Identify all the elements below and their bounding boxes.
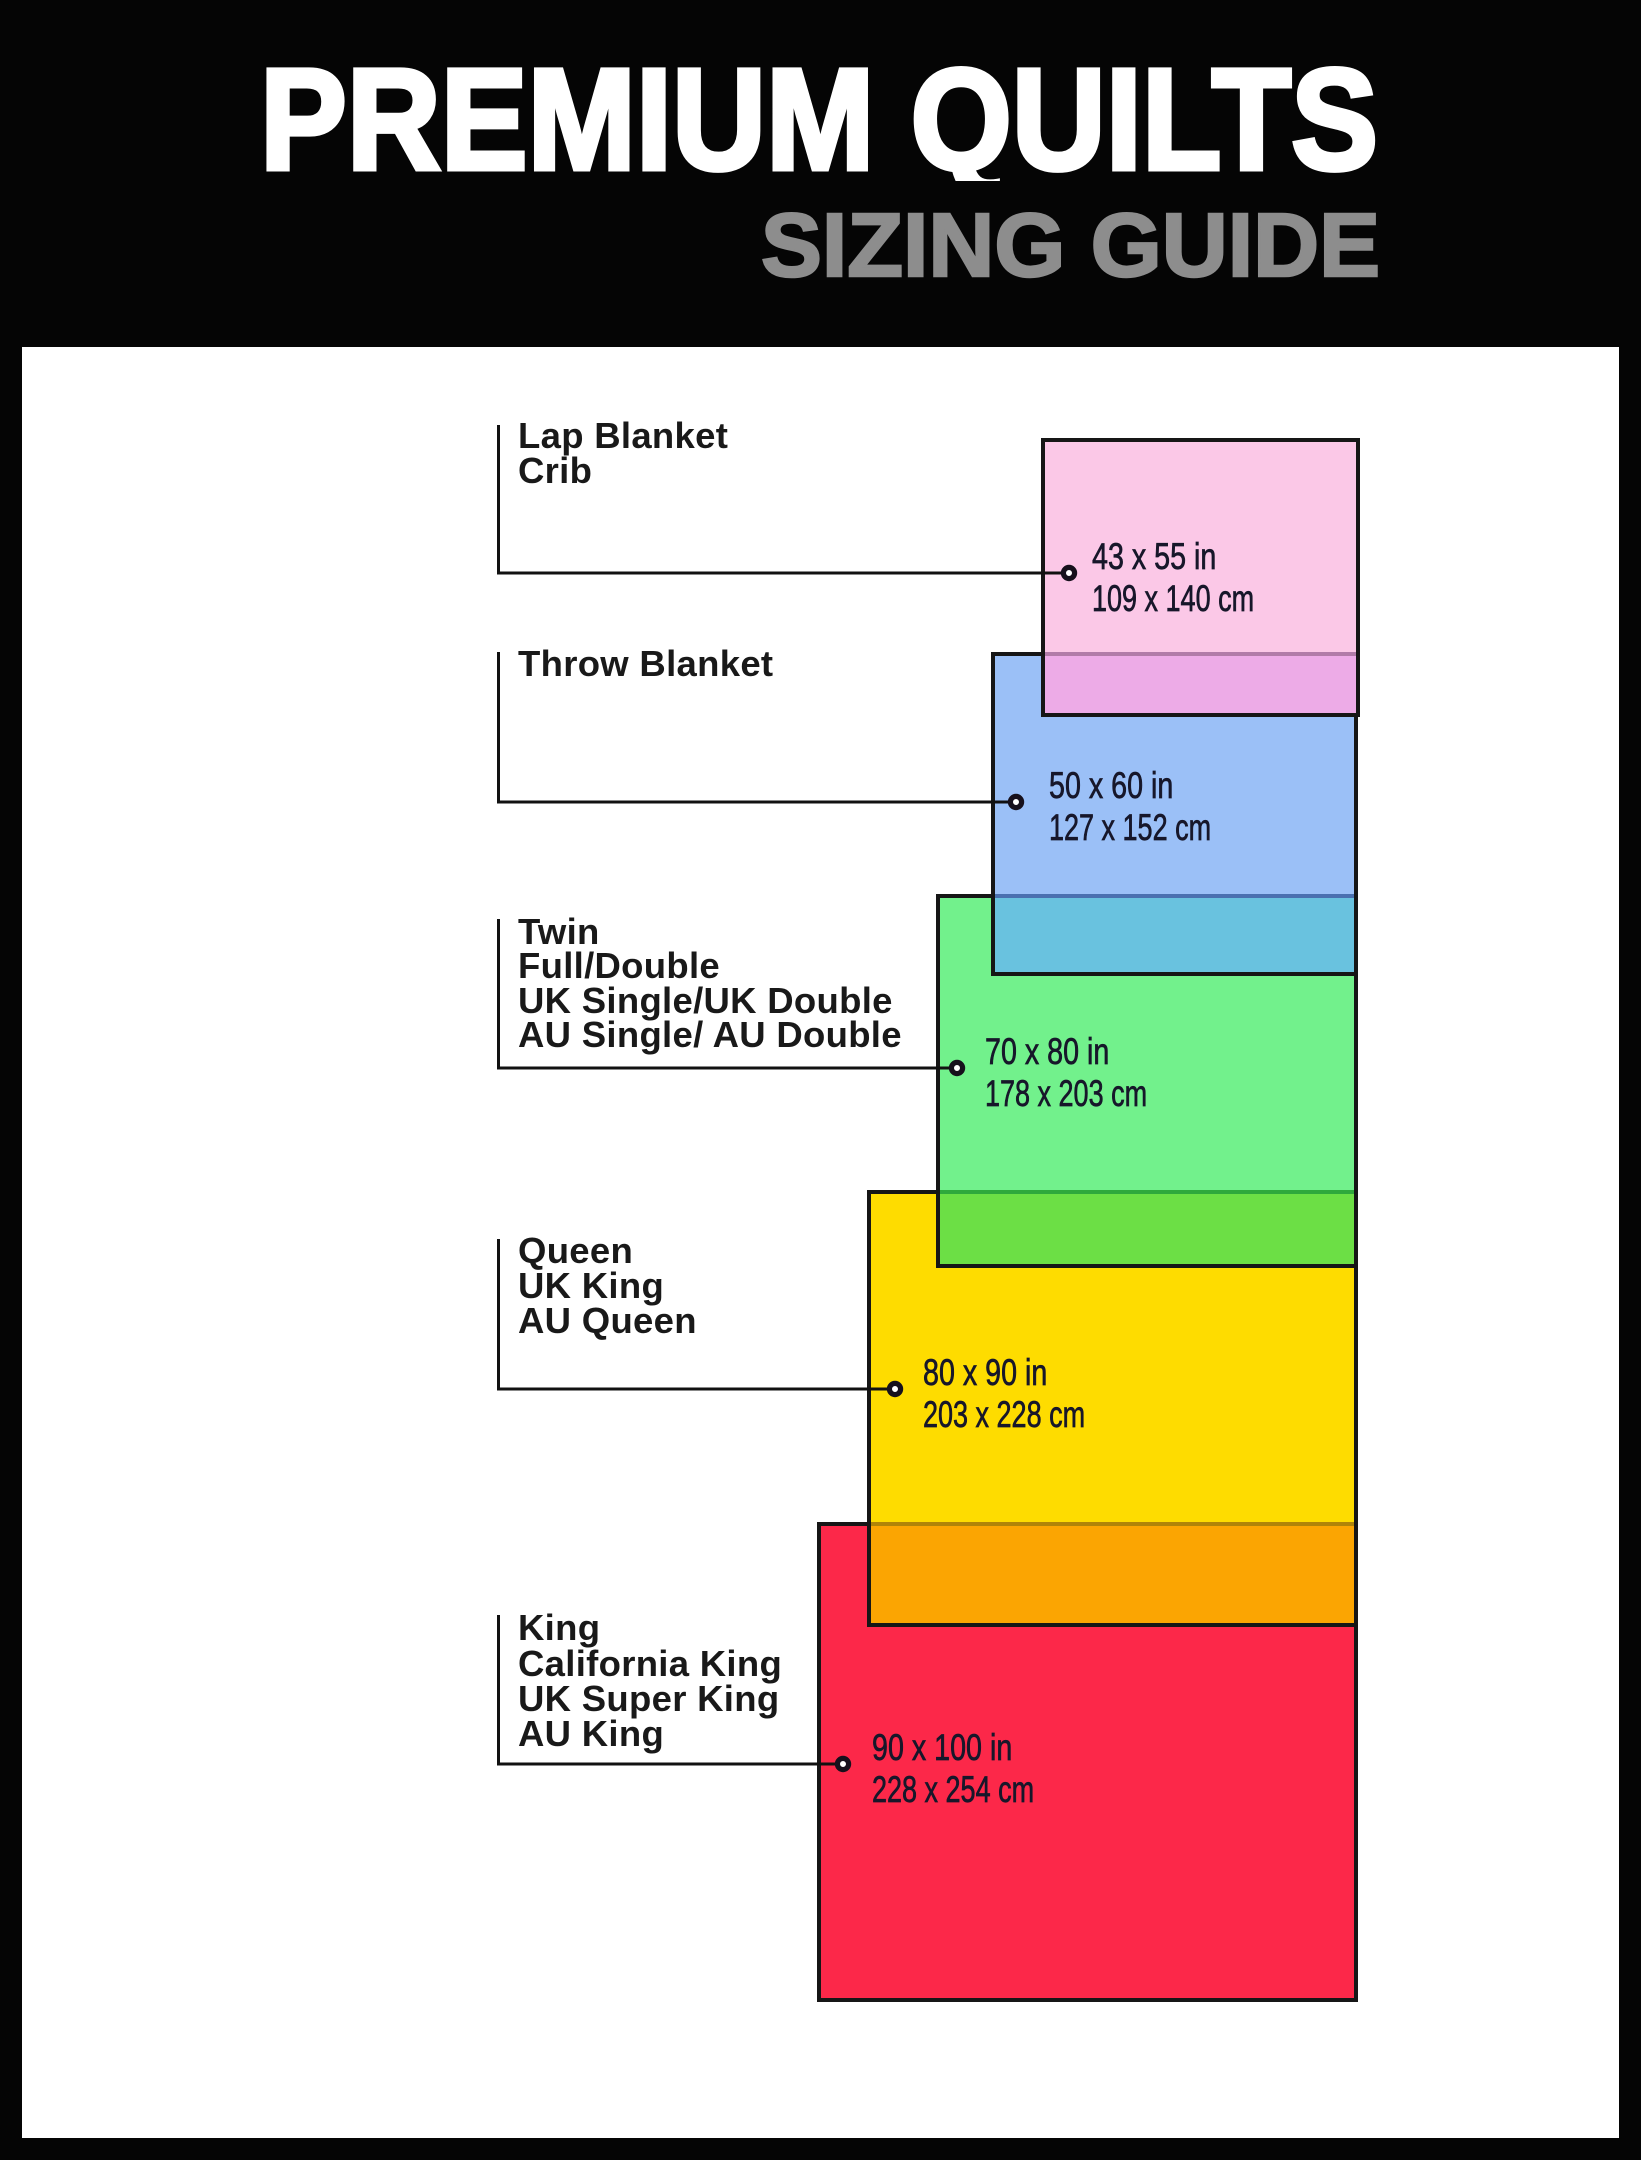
svg-text:SIZING GUIDE: SIZING GUIDE (761, 196, 1380, 296)
svg-text:228 x 254 cm: 228 x 254 cm (872, 1769, 1034, 1810)
svg-text:PREMIUM QUILTS: PREMIUM QUILTS (260, 39, 1378, 200)
svg-text:Crib: Crib (518, 450, 592, 491)
svg-text:Throw Blanket: Throw Blanket (518, 643, 773, 684)
svg-text:109 x 140 cm: 109 x 140 cm (1092, 578, 1254, 619)
svg-text:AU King: AU King (518, 1713, 664, 1754)
svg-text:43 x 55 in: 43 x 55 in (1092, 537, 1216, 578)
svg-text:90 x 100 in: 90 x 100 in (872, 1728, 1012, 1769)
svg-text:70 x 80 in: 70 x 80 in (985, 1032, 1109, 1073)
svg-text:AU Queen: AU Queen (518, 1300, 697, 1341)
svg-text:127 x 152 cm: 127 x 152 cm (1049, 807, 1211, 848)
svg-text:King: King (518, 1607, 600, 1648)
svg-text:178 x 203 cm: 178 x 203 cm (985, 1073, 1147, 1114)
svg-text:203 x 228 cm: 203 x 228 cm (923, 1394, 1085, 1435)
svg-text:50 x 60 in: 50 x 60 in (1049, 766, 1173, 807)
svg-text:80 x 90 in: 80 x 90 in (923, 1353, 1047, 1394)
svg-text:AU Single/ AU Double: AU Single/ AU Double (518, 1014, 902, 1055)
